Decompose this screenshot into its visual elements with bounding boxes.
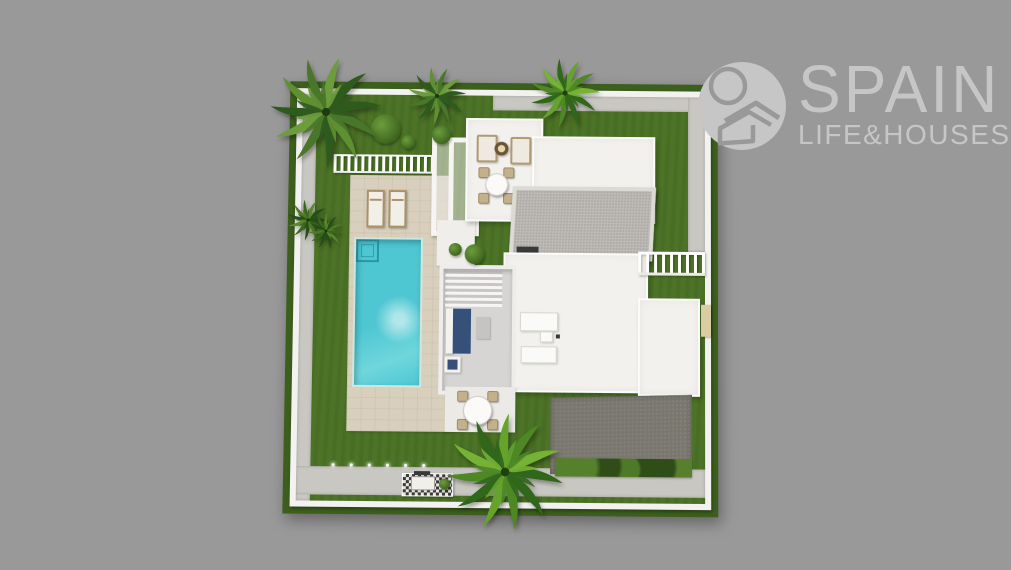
dining-chair: [478, 193, 489, 204]
garage-wing-roof: [638, 298, 700, 397]
brand-wordmark: SPAIN LIFE&HOUSES: [798, 58, 1003, 150]
garden-spotlight: [350, 463, 353, 466]
pergola-beam: [448, 140, 454, 231]
lounge-chair: [444, 356, 460, 372]
interior-courtyard: [438, 265, 516, 396]
sun-lounger: [388, 190, 406, 228]
palm-tree: [443, 410, 567, 534]
navy-sofa: [453, 309, 471, 354]
courtyard-shrub: [465, 244, 485, 264]
outdoor-armchair: [510, 137, 531, 165]
main-flat-roof: [502, 252, 648, 393]
palm-tree: [267, 53, 385, 171]
kitchen-island: [521, 346, 557, 363]
garden-spotlight: [368, 464, 371, 467]
palm-tree: [528, 56, 602, 130]
round-dining-table: [485, 173, 508, 196]
courtyard-shrub: [449, 243, 462, 256]
sink-fixture: [556, 334, 560, 338]
kitchen-unit: [540, 331, 553, 342]
bbq-worktop: [411, 476, 435, 490]
palm-shrub-cluster: [307, 212, 345, 250]
coffee-table: [476, 317, 490, 339]
garden-spotlight: [422, 464, 425, 467]
sun-and-house-circle-icon: [697, 61, 787, 151]
courtyard-pergola-slats: [445, 271, 502, 307]
garden-spotlight: [404, 464, 407, 467]
garden-spotlight: [332, 463, 335, 466]
hedge-row: [555, 458, 692, 477]
side-slatted-walkway: [638, 252, 705, 276]
entrance-gate: [701, 305, 711, 337]
palm-tree: [406, 65, 468, 127]
fire-pit-table: [494, 142, 508, 156]
sun-lounger: [366, 190, 384, 228]
garden-spotlight: [386, 464, 389, 467]
shrub: [432, 126, 451, 145]
brand-name: SPAIN: [798, 57, 1003, 121]
kitchen-island: [520, 312, 558, 331]
grill: [414, 471, 430, 475]
real-estate-render-page: { "page": { "type": "aerial-3d-villa-ren…: [0, 0, 1011, 570]
chair-cushion: [447, 360, 457, 370]
pool-steps: [356, 239, 379, 262]
shrub: [401, 135, 415, 149]
